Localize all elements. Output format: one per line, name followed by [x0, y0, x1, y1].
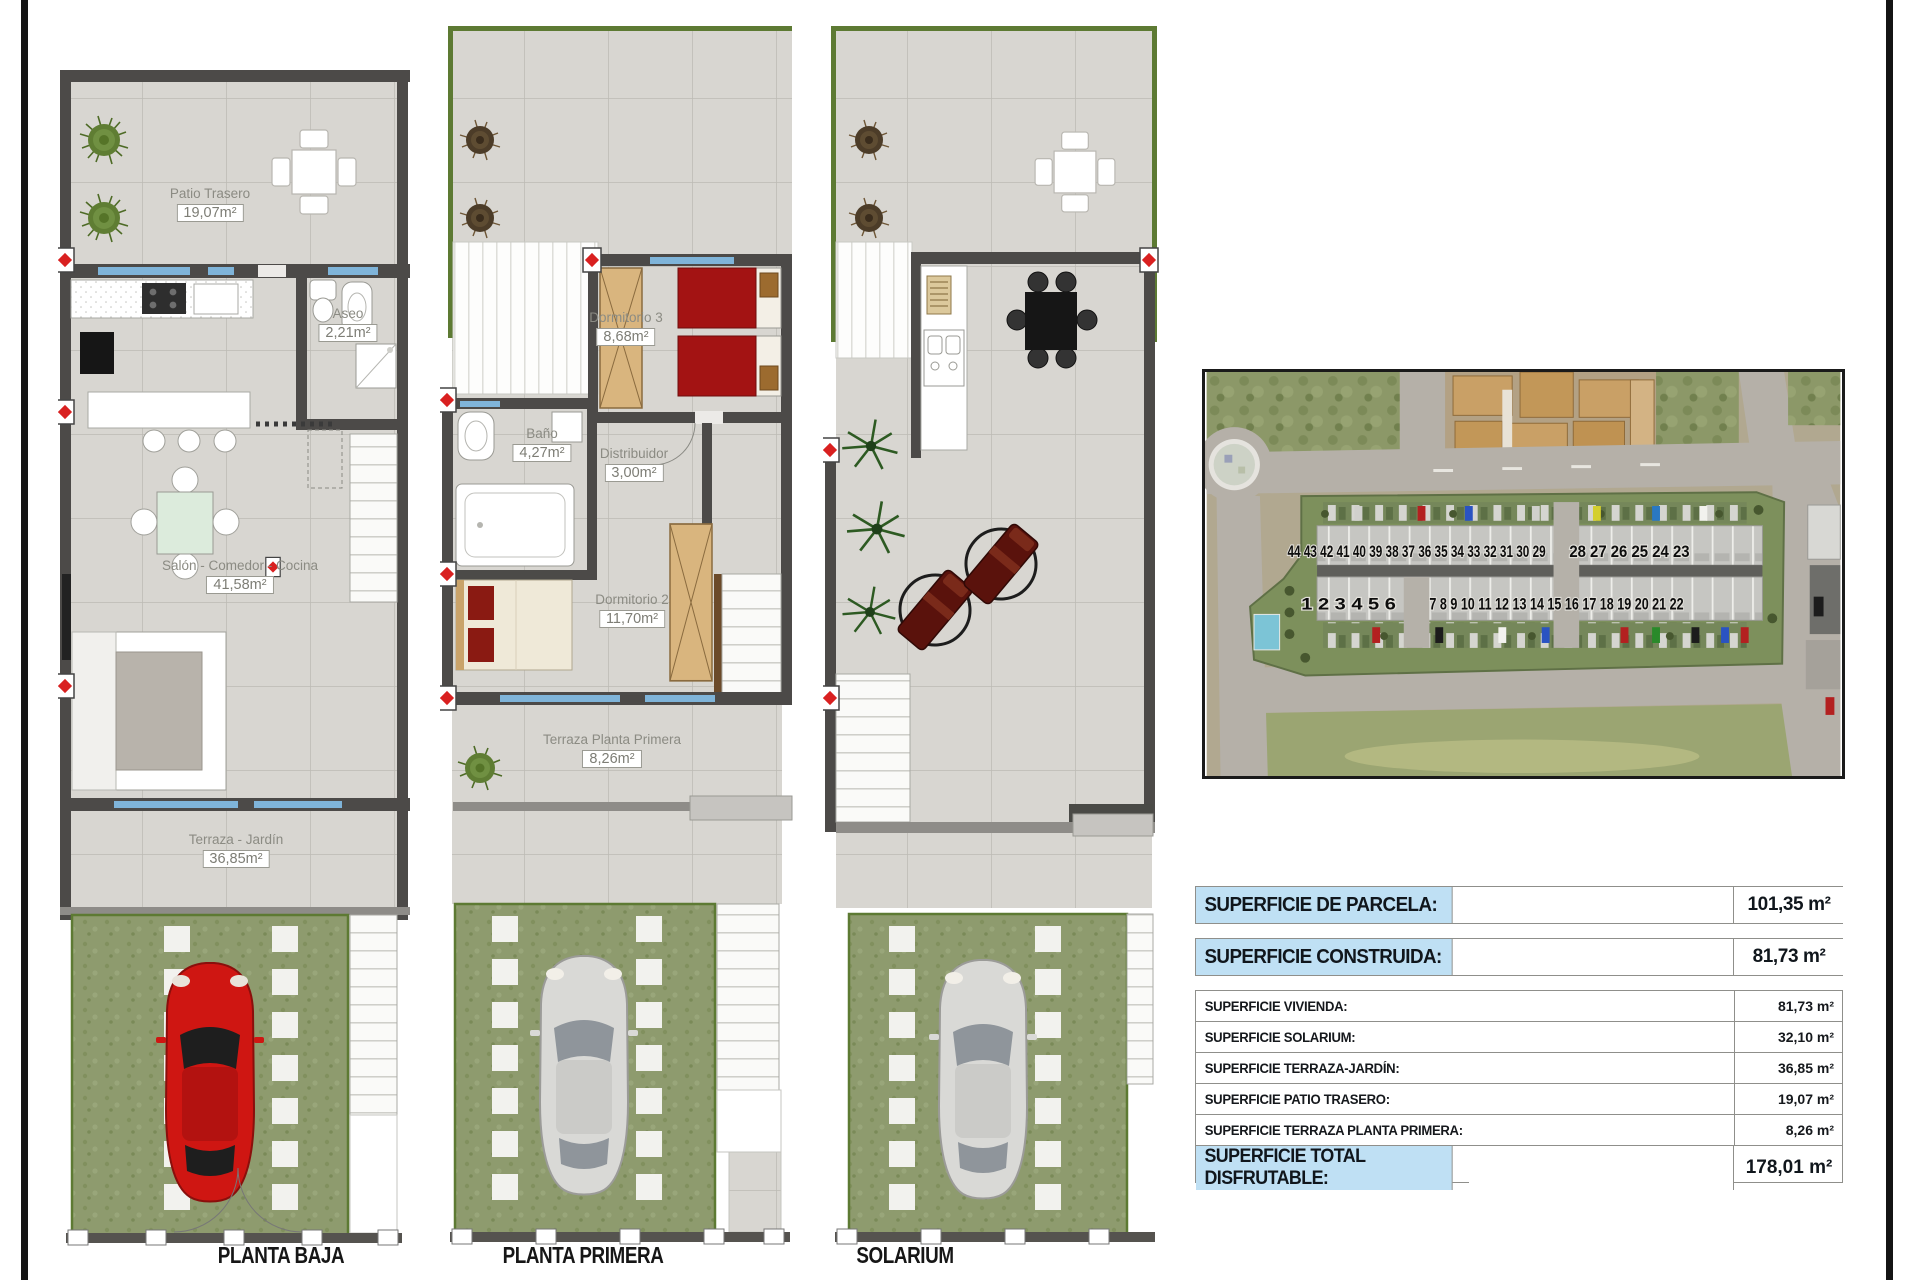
room-label-terraza-jardin: Terraza - Jardín 36,85m²: [189, 832, 284, 868]
room-label-aseo: Aseo 2,21m²: [318, 306, 377, 342]
unit-numbers-back-left: 44 43 42 41 40 39 38 37 36 35 34 33 32 3…: [1288, 542, 1546, 561]
unit-numbers-front-right: 7 8 9 10 11 12 13 14 15 16 17 18 19 20 2…: [1429, 594, 1683, 613]
aerial-site-photo: 44 43 42 41 40 39 38 37 36 35 34 33 32 3…: [1202, 369, 1845, 779]
sheet-border-left: [21, 0, 28, 1280]
areas-detail-table: SUPERFICIE VIVIENDA: 81,73 m² SUPERFICIE…: [1195, 990, 1843, 1183]
room-label-salon-comedor-cocina: Salón - Comedor - Cocina 41,58m²: [162, 558, 318, 594]
table-row-parcela: SUPERFICIE DE PARCELA: 101,35 m²: [1195, 886, 1843, 924]
unit-numbers-back-right: 28 27 26 25 24 23: [1569, 542, 1689, 561]
solarium-drawing: [823, 14, 1165, 1246]
silver-car: [929, 960, 1037, 1199]
table-row-vivienda: SUPERFICIE VIVIENDA: 81,73 m²: [1196, 991, 1842, 1022]
room-label-dormitorio-3: Dormitorio 3 8,68m²: [589, 310, 663, 346]
room-label-patio-trasero: Patio Trasero 19,07m²: [170, 186, 250, 222]
table-row-total-disfrutable: SUPERFICIE TOTAL DISFRUTABLE: 178,01 m²: [1196, 1146, 1842, 1182]
development-block: 44 43 42 41 40 39 38 37 36 35 34 33 32 3…: [1250, 492, 1784, 675]
bed-single: [678, 336, 781, 396]
row-spacer: [1469, 1146, 1734, 1190]
room-label-dormitorio-2: Dormitorio 2 11,70m²: [595, 592, 669, 628]
silver-car: [530, 956, 638, 1195]
table-row-terraza-jardin: SUPERFICIE TERRAZA-JARDÍN: 36,85 m²: [1196, 1053, 1842, 1084]
planta-primera-drawing: [440, 14, 800, 1246]
row-value: 101,35 m²: [1734, 887, 1844, 923]
row-spacer: [1469, 887, 1734, 923]
roadside-buildings: [1806, 505, 1840, 715]
sheet-border-right: [1886, 0, 1893, 1280]
red-car: [156, 963, 264, 1202]
aerial-drawing: 44 43 42 41 40 39 38 37 36 35 34 33 32 3…: [1205, 372, 1842, 776]
plan-title-solarium: SOLARIUM: [856, 1242, 953, 1269]
floorplan-planta-primera: Dormitorio 3 8,68m² Baño 4,27m² Distribu…: [440, 14, 800, 1246]
plan-sheet: Patio Trasero 19,07m² Aseo 2,21m² Salón …: [0, 0, 1920, 1280]
room-label-terraza-planta-primera: Terraza Planta Primera 8,26m²: [543, 732, 681, 768]
row-value: 81,73 m²: [1734, 939, 1844, 975]
room-label-bano: Baño 4,27m²: [512, 426, 571, 462]
solarium-kitchen: [921, 266, 967, 450]
bed-double: [456, 580, 572, 670]
plan-title-planta-baja: PLANTA BAJA: [218, 1242, 344, 1269]
areas-table: SUPERFICIE DE PARCELA: 101,35 m² SUPERFI…: [1195, 886, 1843, 1183]
plan-title-planta-primera: PLANTA PRIMERA: [503, 1242, 664, 1269]
floorplan-solarium: [823, 14, 1165, 1246]
row-spacer: [1469, 939, 1734, 975]
room-label-distribuidor: Distribuidor 3,00m²: [600, 446, 668, 482]
table-row-patio-trasero: SUPERFICIE PATIO TRASERO: 19,07 m²: [1196, 1084, 1842, 1115]
row-label: SUPERFICIE DE PARCELA:: [1196, 887, 1453, 923]
table-row-terraza-planta-primera: SUPERFICIE TERRAZA PLANTA PRIMERA: 8,26 …: [1196, 1115, 1842, 1146]
table-row-solarium: SUPERFICIE SOLARIUM: 32,10 m²: [1196, 1022, 1842, 1053]
bed-single: [678, 268, 781, 328]
floorplan-planta-baja: Patio Trasero 19,07m² Aseo 2,21m² Salón …: [58, 14, 410, 1246]
unit-numbers-front-left: 1 2 3 4 5 6: [1301, 594, 1396, 613]
row-label: SUPERFICIE CONSTRUIDA:: [1196, 939, 1453, 975]
table-row-construida: SUPERFICIE CONSTRUIDA: 81,73 m²: [1195, 938, 1843, 976]
